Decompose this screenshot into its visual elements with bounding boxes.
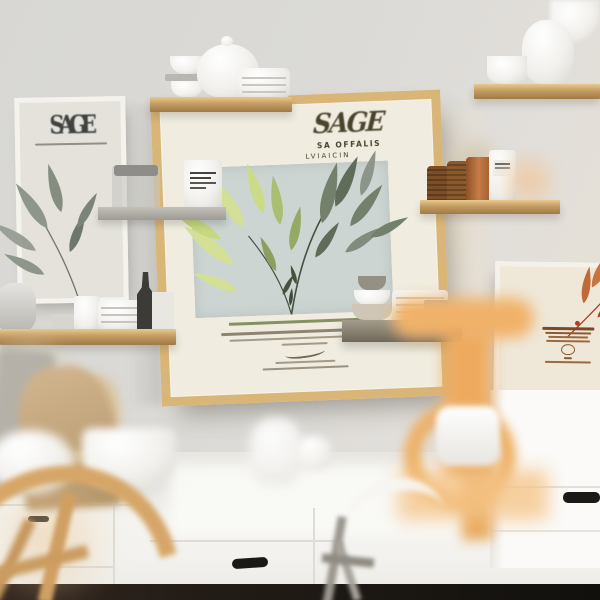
plate-edge-line — [101, 307, 141, 309]
text-line — [546, 339, 590, 342]
white-vase — [250, 418, 302, 486]
poster-main-title: SAGE — [301, 105, 395, 140]
teapot-lid-knob — [221, 36, 233, 46]
top-right-shelf — [474, 84, 600, 99]
stacked-bowl — [354, 290, 390, 305]
plate-edge-line — [242, 84, 286, 86]
poster-main: SAGE SA OFFALIS LVIAICIN — [150, 90, 452, 407]
stacked-bowl — [352, 304, 392, 320]
pitcher — [522, 20, 574, 84]
canister-label — [190, 172, 216, 196]
signature-mark — [285, 345, 326, 361]
plate-edge-line — [242, 77, 286, 79]
label-text-line — [190, 172, 216, 174]
cabinet-seam — [150, 540, 335, 542]
text-line — [545, 360, 591, 363]
label-text-line — [190, 182, 216, 184]
top-center-shelf — [150, 97, 292, 112]
label-text-line — [190, 187, 206, 189]
sideboard-seam — [490, 530, 600, 532]
poster-left-tint — [19, 101, 123, 299]
kitchen-scene: SAGE SAGE SA OFFALIS LVIAICIN — [0, 0, 600, 600]
serving-bowl — [487, 56, 527, 84]
text-line — [275, 360, 335, 364]
stacked-bowl — [358, 276, 386, 290]
drawer-handle — [563, 492, 600, 503]
plate-edge-line — [101, 314, 141, 316]
text-line — [282, 342, 328, 346]
mug — [436, 406, 500, 466]
poster-main-header: SAGE SA OFFALIS LVIAICIN — [302, 106, 396, 160]
white-box — [152, 292, 174, 331]
plate-edge-line — [101, 321, 141, 323]
text-line — [263, 365, 349, 370]
poster-right-text-block — [533, 327, 600, 363]
mid-right-shelf — [420, 200, 560, 214]
canister — [74, 296, 100, 331]
plate-stack — [238, 68, 290, 98]
glass-jar — [112, 165, 160, 210]
amber-jar — [427, 166, 449, 202]
glass-jar-lid — [114, 165, 158, 176]
label-text-line — [190, 177, 211, 179]
left-gray-shelf — [98, 207, 226, 220]
labeled-canister — [184, 160, 222, 210]
stamp-mark — [561, 344, 575, 355]
text-line — [545, 331, 591, 334]
bowl-stack — [352, 276, 392, 320]
stoneware-jug — [0, 283, 36, 331]
plate-edge-line — [242, 91, 286, 93]
text-line — [542, 327, 594, 330]
text-line — [564, 357, 572, 359]
text-line — [548, 335, 588, 338]
small-cup — [296, 436, 332, 470]
cabinet-seam — [313, 508, 315, 588]
